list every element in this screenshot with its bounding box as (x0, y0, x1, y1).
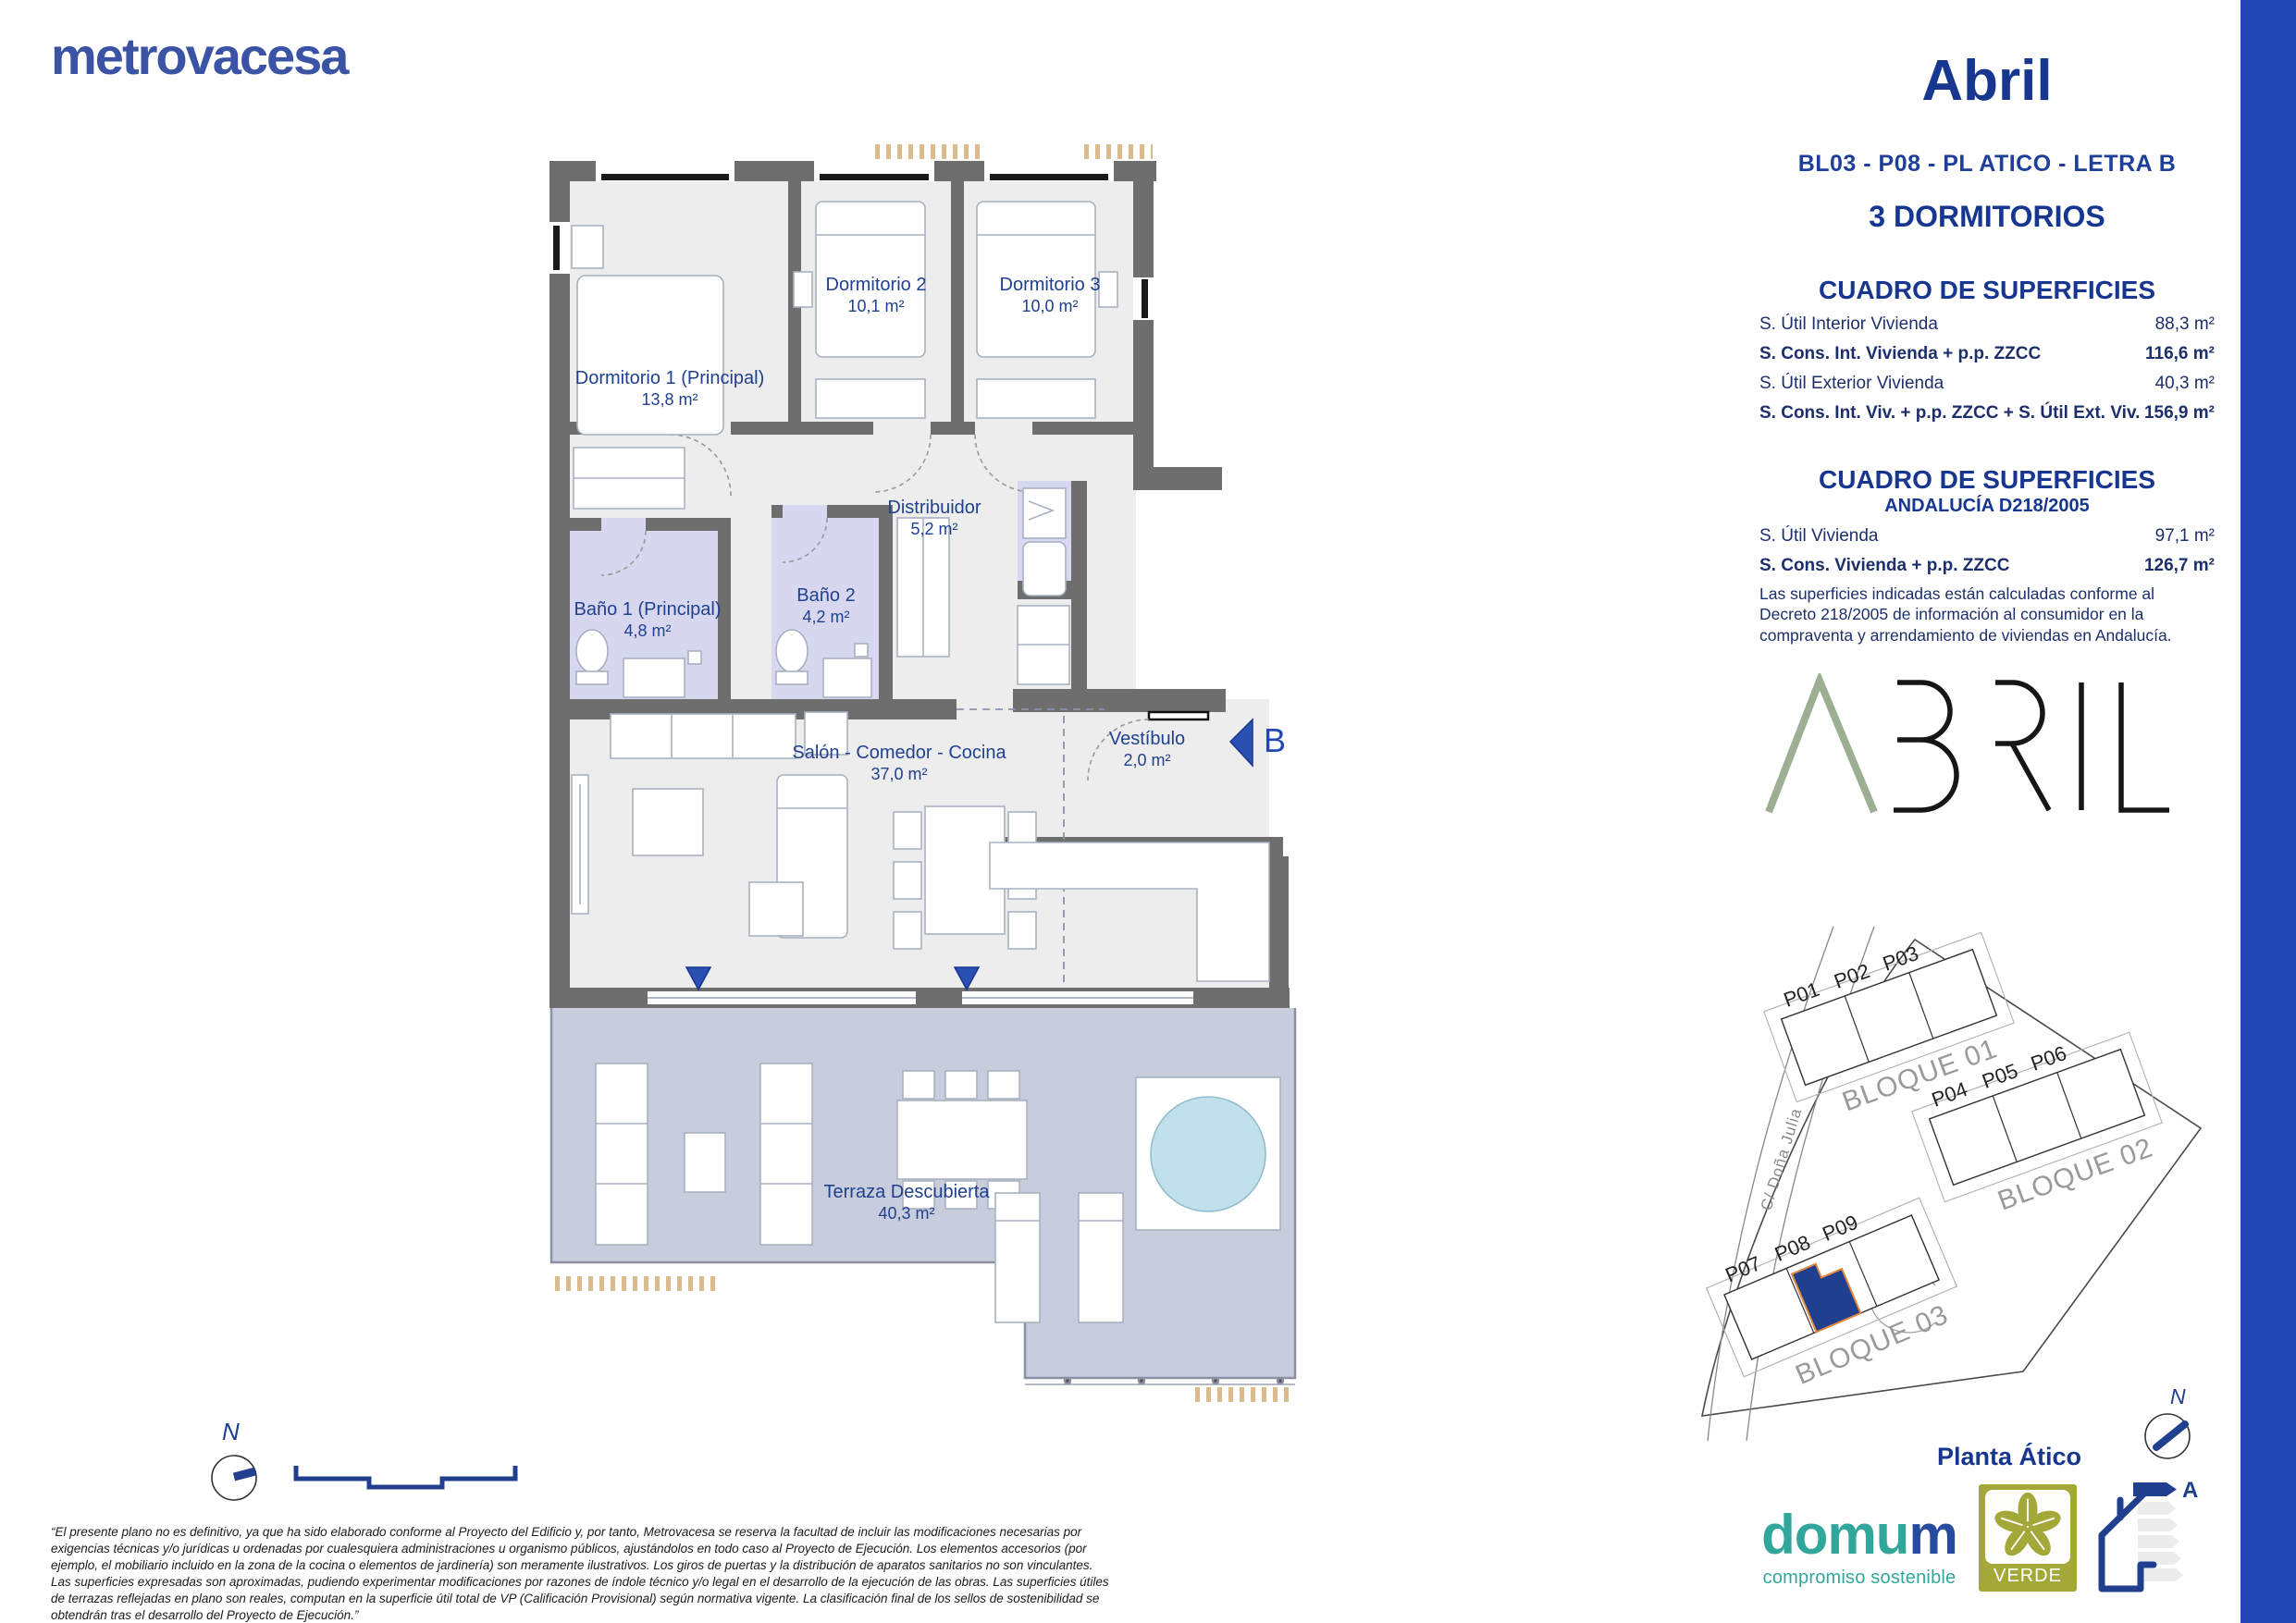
energy-rating-icon: A (2087, 1476, 2203, 1598)
north-compass-icon (212, 1456, 256, 1500)
north-compass-icon: N (2145, 1384, 2190, 1458)
surface-table-main: CUADRO DE SUPERFICIES S. Útil Interior V… (1759, 276, 2215, 424)
north-label: N (222, 1418, 240, 1445)
room-label-dormitorio3: Dormitorio 310,0 m² (1000, 275, 1101, 316)
room-label-distribuidor: Distribuidor5,2 m² (887, 498, 981, 539)
table-row: S. Cons. Int. Viv. + p.p. ZZCC + S. Útil… (1759, 403, 2215, 424)
entrance-letter: B (1264, 721, 1286, 760)
svg-text:N: N (2170, 1384, 2186, 1408)
room-label-banio1: Baño 1 (Principal)4,8 m² (574, 599, 722, 641)
legal-disclaimer: “El presente plano no es definitivo, ya … (51, 1524, 1115, 1623)
table-note: Las superficies indicadas están calculad… (1759, 584, 2215, 646)
verde-badge: VERDE (1979, 1484, 2077, 1592)
right-accent-bar (2240, 0, 2296, 1623)
table-row: S. Útil Exterior Vivienda40,3 m² (1759, 374, 2215, 394)
room-label-dormitorio2: Dormitorio 210,1 m² (826, 275, 927, 316)
table-title: CUADRO DE SUPERFICIES (1759, 465, 2215, 495)
domum-logo: domum compromiso sostenible (1750, 1507, 1969, 1587)
table-row: S. Útil Vivienda97,1 m² (1759, 526, 2215, 547)
surface-table-andalucia: CUADRO DE SUPERFICIES ANDALUCÍA D218/200… (1759, 465, 2215, 646)
room-label-terraza: Terraza Descubierta40,3 m² (824, 1182, 990, 1223)
room-label-vestibulo: Vestíbulo2,0 m² (1109, 729, 1185, 770)
verde-leaf-icon (1985, 1490, 2070, 1564)
floor-name-label: Planta Ático (1898, 1443, 2120, 1471)
room-label-banio2: Baño 24,2 m² (796, 585, 855, 627)
room-label-dormitorio1: Dormitorio 1 (Principal)13,8 m² (575, 368, 765, 410)
table-row: S. Útil Interior Vivienda88,3 m² (1759, 314, 2215, 335)
table-title: CUADRO DE SUPERFICIES (1759, 276, 2215, 305)
plan-compass-and-scale: N (157, 1401, 564, 1512)
unit-reference: BL03 - P08 - PL ATICO - LETRA B (1759, 151, 2215, 178)
jacuzzi-pool (1151, 1097, 1265, 1211)
domum-tagline: compromiso sostenible (1750, 1568, 1969, 1587)
table-row: S. Cons. Int. Vivienda + p.p. ZZCC116,6 … (1759, 344, 2215, 364)
svg-text:A: A (2182, 1478, 2198, 1503)
abril-logo (1762, 673, 2206, 821)
site-plan: C/ Doña Julia P01 P02 P03 BLOQUE 01 P04 … (1693, 925, 2248, 1461)
floorplan-sheet: metrovacesa Abril BL03 - P08 - PL ATICO … (0, 0, 2296, 1623)
page-title: Abril (1759, 48, 2215, 114)
room-label-salon: Salón - Comedor - Cocina37,0 m² (792, 743, 1006, 784)
metrovacesa-logo: metrovacesa (51, 26, 347, 86)
table-subtitle: ANDALUCÍA D218/2005 (1759, 496, 2215, 517)
bedrooms-count: 3 DORMITORIOS (1759, 200, 2215, 234)
scale-bar (296, 1466, 515, 1487)
table-row: S. Cons. Vivienda + p.p. ZZCC126,7 m² (1759, 556, 2215, 576)
